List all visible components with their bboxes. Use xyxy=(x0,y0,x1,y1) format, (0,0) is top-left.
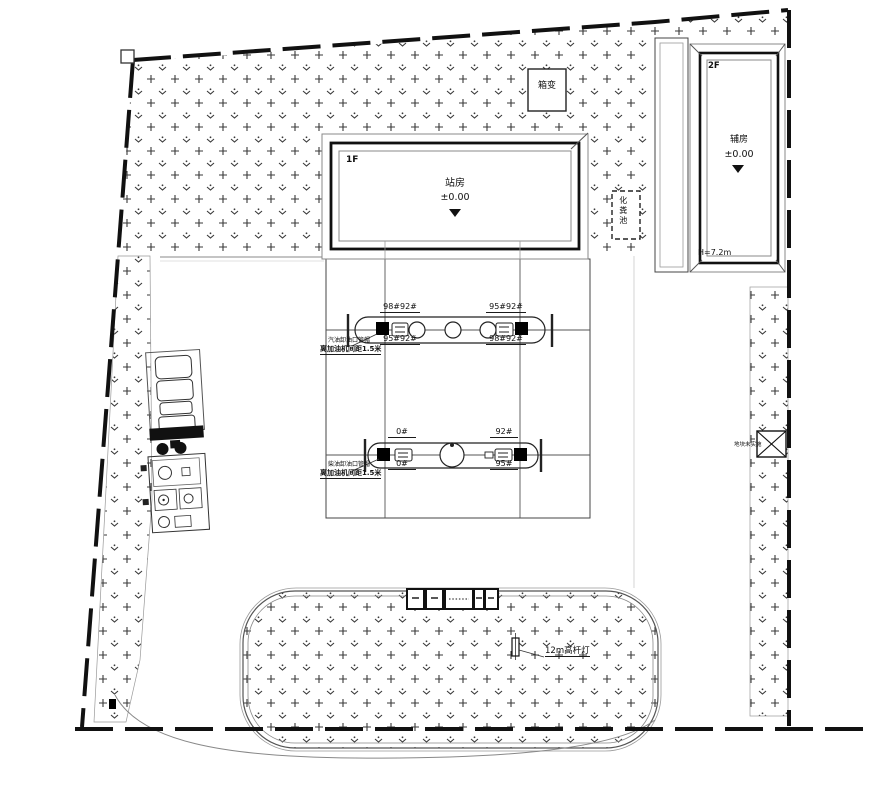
manhole xyxy=(445,322,461,338)
transformer-label: 箱变 xyxy=(528,82,566,92)
island2-grade-top-left: 0# xyxy=(388,428,416,438)
canopy-column-boxes xyxy=(407,589,498,609)
island2-grade-top-right: 92# xyxy=(490,428,518,438)
hatch-right-strip xyxy=(750,287,788,716)
island2-grade-bottom-left: 0# xyxy=(388,460,416,470)
light-pole-label: 12m高杆灯 xyxy=(545,647,590,657)
island2-grade-bottom-right: 95# xyxy=(490,460,518,470)
island1-note-line2: 离加油机间距1.5米 xyxy=(320,346,381,355)
right-strip-note: 地块未实施 xyxy=(734,442,762,448)
island1-grade-bottom-left: 95#92# xyxy=(380,335,420,345)
station-elevation-label: ±0.00 xyxy=(395,193,515,203)
canopy-green-area xyxy=(243,591,658,748)
site-plan-drawing: 箱变 1F 站房 ±0.00 2F 辅房 ±0.00 H=7.2m 化粪池 98… xyxy=(0,0,869,795)
aux-height-label: H=7.2m xyxy=(698,249,731,258)
aux-name-label: 辅房 xyxy=(704,136,774,146)
island1-note-line1: 汽油卸油口管帽 xyxy=(328,338,370,345)
island1-grade-bottom-right: 98#92# xyxy=(486,335,526,345)
island1-grade-top-left: 98#92# xyxy=(380,303,420,313)
unloading-manifold xyxy=(149,425,204,440)
equipment-pad xyxy=(148,453,210,532)
septic-tank-label: 化粪池 xyxy=(618,196,627,236)
tank-pad xyxy=(326,259,590,518)
aux-floor-label: 2F xyxy=(708,62,720,71)
station-name-label: 站房 xyxy=(395,178,515,189)
hatch-left-strip xyxy=(94,256,152,722)
curb-marker xyxy=(109,699,116,709)
site-plan-svg xyxy=(0,0,869,795)
aux-elevation-label: ±0.00 xyxy=(704,150,774,160)
walkway xyxy=(655,38,688,272)
station-elevation-marker xyxy=(449,209,461,217)
island2-note-line1: 柴油卸油口管帽 xyxy=(328,462,370,469)
station-floor-label: 1F xyxy=(346,156,358,166)
island1-grade-top-right: 95#92# xyxy=(486,303,526,313)
boundary-corner-marker xyxy=(121,50,134,63)
island2-note-line2: 离加油机间距1.5米 xyxy=(320,470,381,479)
tanker-truck xyxy=(155,355,192,379)
aux-elevation-marker xyxy=(732,165,744,173)
